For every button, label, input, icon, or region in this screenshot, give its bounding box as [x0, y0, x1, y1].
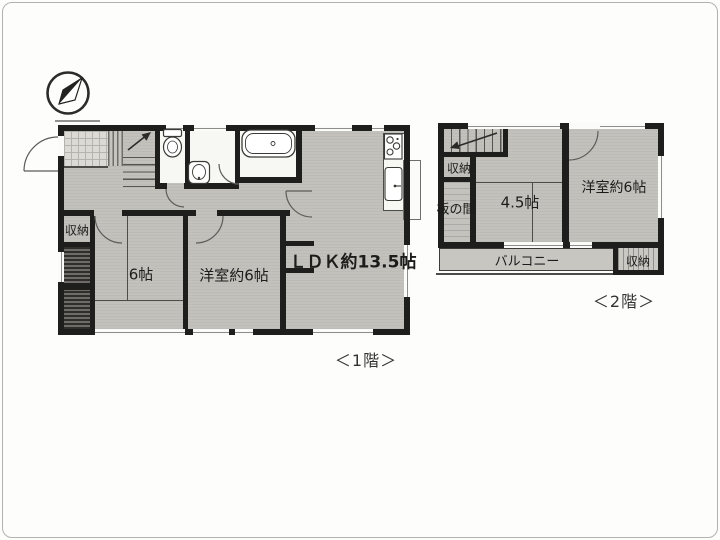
room-label-tatami45: 4.5帖 — [501, 192, 540, 213]
entrance-slat-area — [108, 131, 123, 166]
wall — [58, 210, 94, 216]
tatami-line — [94, 300, 183, 301]
window — [504, 242, 563, 248]
window — [372, 125, 384, 131]
room-label-western-1f: 洋室約6帖 — [199, 265, 269, 286]
toilet-room — [160, 131, 185, 183]
window — [193, 329, 229, 335]
washroom — [190, 131, 235, 183]
room-label-itanoma: 板の間 — [436, 199, 475, 218]
window — [58, 252, 64, 282]
wall — [235, 177, 302, 183]
tatami-line — [476, 182, 562, 183]
wall — [613, 270, 664, 275]
window — [194, 125, 226, 131]
window — [95, 329, 185, 335]
room-label-western-2f: 洋室約6帖 — [582, 177, 647, 197]
room-label-balcony: バルコニー — [495, 251, 560, 270]
room-label-storage-1f: 収納 — [65, 222, 89, 239]
wall — [90, 216, 95, 329]
staircase-1f — [123, 151, 155, 189]
wall — [58, 125, 410, 131]
wall — [184, 183, 239, 189]
room-label-ldk: ＬＤＫ約13.5帖 — [290, 248, 417, 273]
window — [315, 125, 352, 131]
wall — [185, 125, 190, 189]
room-label-storage-2f-upper: 収納 — [447, 160, 471, 177]
balcony-outer-rail — [436, 273, 622, 275]
wall — [58, 242, 94, 247]
kitchen-counter — [383, 133, 405, 211]
entrance-door-arc — [24, 137, 58, 171]
entrance-door-opening — [58, 136, 64, 156]
wall — [58, 125, 64, 335]
window — [570, 242, 592, 248]
window — [235, 329, 253, 335]
floor2-caption: ＜2階＞ — [593, 288, 655, 312]
wall — [438, 123, 444, 248]
wall — [503, 129, 508, 157]
entrance-step-line — [64, 166, 108, 168]
staircase-2f — [444, 129, 503, 152]
floorplan-canvas: 収納 6帖 洋室約6帖 ＬＤＫ約13.5帖 ＜1階＞ — [0, 0, 720, 540]
wall — [562, 129, 569, 248]
tatami-line — [127, 216, 128, 300]
wall — [404, 125, 410, 335]
entrance-genkan — [64, 131, 108, 167]
room-label-tatami6: 6帖 — [129, 264, 154, 285]
wall — [296, 125, 302, 183]
door-opening-2f — [569, 123, 600, 129]
window — [658, 156, 664, 218]
window — [166, 125, 183, 131]
window — [313, 329, 373, 335]
wall — [155, 183, 167, 189]
wall — [235, 125, 240, 183]
wall — [280, 216, 286, 329]
wall — [183, 216, 188, 329]
room-label-storage-2f-lower: 収納 — [626, 253, 650, 270]
compass-icon — [48, 73, 89, 114]
bathroom — [240, 131, 296, 177]
wall — [155, 125, 160, 189]
ldk-wall-stub — [286, 241, 314, 246]
floor1-caption: ＜1階＞ — [335, 347, 397, 371]
window — [600, 123, 645, 129]
window — [468, 123, 560, 129]
